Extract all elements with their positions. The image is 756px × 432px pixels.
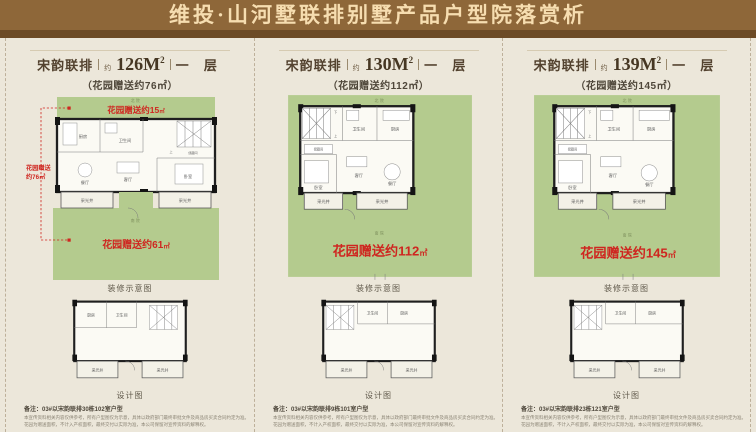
yard-bottom-label: 南院 [131, 218, 142, 223]
room-dining: 餐厅 [644, 181, 653, 188]
brochure-page: { "banner": { "title": "维投·山河墅联排别墅产品户型院落… [0, 0, 756, 432]
room-living: 客厅 [124, 176, 132, 183]
area-sup: 2 [160, 55, 165, 65]
well-right-label: 采光井 [179, 197, 192, 204]
approx-label: 约 [104, 63, 111, 73]
room-dining: 餐厅 [81, 179, 89, 186]
garden-top-text: 花园赠送约15 [107, 105, 159, 115]
divider-bar [666, 59, 667, 70]
yard-top-label: 北院 [374, 98, 385, 103]
well-right-label: 采光井 [653, 367, 665, 372]
room-kitchen: 厨房 [390, 125, 398, 132]
garden-subtitle: （花园赠送约112㎡） [328, 77, 430, 92]
room-bath: 卫生间 [119, 137, 132, 144]
sofa-icon [346, 157, 366, 167]
approx-label: 约 [601, 63, 608, 73]
caption-design: 设计图 [613, 390, 640, 401]
well-right-label: 采光井 [632, 198, 645, 205]
red-marker-top [68, 107, 71, 110]
series-name: 宋韵联排 [534, 55, 590, 74]
well-right-label: 采光井 [375, 198, 388, 205]
floor-plan-design: 卫生间 厨房 采光井 采光井 [300, 296, 458, 389]
stairs-icon [326, 305, 354, 329]
stairs-icon [302, 108, 330, 138]
floor-plan-design: 厨房 卫生间 采光井 采光井 [51, 296, 209, 389]
unit-header: 宋韵联排 约 126M2 一 层 [30, 50, 230, 74]
divider-bar [98, 59, 99, 70]
unit-header: 宋韵联排 约 130M2 一 层 [279, 50, 479, 74]
garden-top-label: 花园赠送约15㎡ [107, 105, 165, 115]
stairs-icon [556, 108, 584, 138]
garden-main-unit: ㎡ [667, 250, 676, 260]
page-title: 维投·山河墅联排别墅产品户型院落赏析 [169, 5, 587, 26]
room-kitchen: 厨房 [87, 312, 95, 317]
well-left-label: 采光井 [317, 198, 330, 205]
room-living: 客厅 [354, 172, 363, 179]
room-bedroom: 卧室 [184, 173, 192, 180]
bathtub-icon [105, 123, 117, 133]
series-name: 宋韵联排 [286, 55, 342, 74]
disclaimer-line-2: 花园为赠送面积，不计入产权面积，最终交付以实际为准，本公司保留对宣传资料的解释权… [24, 422, 249, 428]
area-sup: 2 [409, 55, 414, 65]
unit-area: 139M2 [613, 55, 662, 73]
room-closet: 储藏间 [188, 150, 197, 155]
garden-subtitle: （花园赠送约76㎡） [82, 77, 178, 92]
yard-bottom-label: 南院 [374, 230, 385, 235]
bathtub-icon [346, 110, 358, 120]
disclaimer-line-2: 花园为赠送面积，不计入产权面积，最终交付以实际为准，本公司保留对宣传资料的解释权… [273, 422, 498, 428]
area-value: 126M [116, 54, 160, 74]
door-arc [374, 361, 383, 370]
floor-label: 一 层 [424, 55, 471, 74]
kitchen-counter-icon [383, 110, 409, 120]
floor-plan-main: 北院 花园赠送约15㎡ 南院 花园赠送约61㎡ [25, 92, 235, 282]
area-value: 130M [365, 54, 409, 74]
room-kitchen: 厨房 [400, 311, 408, 316]
room-bath: 卫生间 [352, 125, 365, 132]
area-value: 139M [613, 54, 657, 74]
garden-tongue [119, 192, 153, 208]
room-bath: 卫生间 [614, 311, 626, 316]
garden-side-line2: 约76㎡ [26, 173, 46, 181]
title-banner: 维投·山河墅联排别墅产品户型院落赏析 [0, 0, 756, 30]
well-left-label: 采光井 [571, 198, 584, 205]
yard-top-label: 北院 [131, 98, 142, 103]
footnote-block: 备注：03#以宋韵联排9栋101室户型 本宣传资料相关内容仅供参考，所有户型图仅… [263, 407, 498, 427]
floor-label: 一 层 [672, 55, 719, 74]
disclaimer-line-1: 本宣传资料相关内容仅供参考，所有户型图仅为示意，具体以政府部门最终审批文件及商品… [273, 415, 498, 421]
bathtub-icon [600, 110, 612, 120]
stairs-up-label: 上 [169, 149, 172, 154]
kitchen-counter-icon [63, 123, 77, 145]
sofa-icon [117, 162, 139, 173]
floor-plan-main: 北院 [278, 92, 480, 282]
disclaimer-line-1: 本宣传资料相关内容仅供参考，所有户型图仅为示意，具体以政府部门最终审批文件及商品… [521, 415, 746, 421]
stairs-icon [177, 121, 211, 147]
room-kitchen: 厨房 [647, 125, 655, 132]
disclaimer-line-1: 本宣传资料相关内容仅供参考，所有户型图仅为示意，具体以政府部门最终审批文件及商品… [24, 415, 249, 421]
divider-bar [418, 59, 419, 70]
unit-area: 126M2 [116, 55, 165, 73]
room-living: 客厅 [608, 172, 617, 179]
room-bath: 卫生间 [366, 311, 378, 316]
unit-panel-130: 宋韵联排 约 130M2 一 层 （花园赠送约112㎡） 北院 [254, 38, 502, 432]
room-bath: 卫生间 [116, 312, 128, 317]
unit-header: 宋韵联排 约 139M2 一 层 [527, 50, 727, 74]
kitchen-counter-icon [639, 110, 669, 120]
door-arc [622, 361, 631, 370]
well-left-label: 采光井 [588, 367, 600, 372]
divider-bar [595, 59, 596, 70]
room-closet: 储藏间 [313, 147, 322, 152]
remark-line: 备注：03#以宋韵联排23栋121室户型 [521, 407, 746, 414]
caption-decorated: 装修示意图 [108, 283, 153, 294]
divider-bar [170, 59, 171, 70]
stairs-icon [150, 305, 178, 329]
room-dining: 餐厅 [387, 180, 396, 187]
caption-decorated: 装修示意图 [356, 283, 401, 294]
floor-plan-design: 卫生间 厨房 采光井 采光井 [548, 296, 706, 389]
room-bedroom: 卧室 [314, 184, 322, 191]
door-arc [125, 361, 134, 370]
room-kitchen: 厨房 [79, 133, 87, 140]
yard-top-label: 北院 [622, 98, 633, 103]
stairs-down-label: 下 [588, 110, 591, 114]
well-left-label: 采光井 [340, 367, 352, 372]
unit-panel-139: 宋韵联排 约 139M2 一 层 （花园赠送约145㎡） 北院 [502, 38, 750, 432]
panels-row: 宋韵联排 约 126M2 一 层 （花园赠送约76㎡） 北院 花园赠送约15㎡ … [5, 38, 751, 432]
garden-bottom-unit: ㎡ [163, 241, 170, 250]
yard-bottom-label: 南院 [622, 232, 633, 237]
caption-decorated: 装修示意图 [604, 283, 649, 294]
footnote-block: 备注：03#以宋韵联排30栋102室户型 本宣传资料相关内容仅供参考，所有户型图… [14, 407, 249, 427]
red-marker-bottom [68, 239, 71, 242]
unit-panel-126: 宋韵联排 约 126M2 一 层 （花园赠送约76㎡） 北院 花园赠送约15㎡ … [6, 38, 254, 432]
banner-accent-strip [0, 30, 756, 38]
bed-icon [304, 161, 328, 183]
well-left-label: 采光井 [81, 197, 94, 204]
unit-area: 130M2 [365, 55, 414, 73]
dining-table-icon [641, 165, 657, 181]
dining-table-icon [384, 164, 400, 180]
garden-main-unit: ㎡ [419, 248, 428, 258]
garden-bottom-label: 花园赠送约61㎡ [102, 238, 170, 251]
stairs-up-label: 上 [334, 134, 337, 139]
stairs-icon [574, 305, 602, 329]
room-bedroom: 卧室 [568, 184, 576, 191]
bed-icon [558, 161, 582, 183]
dining-table-icon [78, 163, 92, 177]
caption-design: 设计图 [365, 390, 392, 401]
garden-main-label: 花园赠送约112㎡ [332, 243, 428, 259]
well-left-label: 采光井 [92, 367, 104, 372]
divider-bar [347, 59, 348, 70]
garden-subtitle: （花园赠送约145㎡） [575, 77, 677, 92]
well-right-label: 采光井 [157, 367, 169, 372]
stairs-down-label: 下 [334, 110, 337, 114]
room-kitchen: 厨房 [648, 311, 656, 316]
garden-main-text: 花园赠送约112 [332, 243, 419, 259]
garden-top-unit: ㎡ [159, 107, 165, 115]
floor-plan-main: 北院 [526, 92, 728, 282]
footnote-block: 备注：03#以宋韵联排23栋121室户型 本宣传资料相关内容仅供参考，所有户型图… [511, 407, 746, 427]
disclaimer-line-2: 花园为赠送面积，不计入产权面积，最终交付以实际为准，本公司保留对宣传资料的解释权… [521, 422, 746, 428]
floor-label: 一 层 [176, 55, 223, 74]
well-right-label: 采光井 [405, 367, 417, 372]
room-closet: 储藏间 [567, 147, 576, 152]
garden-main-label: 花园赠送约145㎡ [580, 245, 677, 261]
caption-design: 设计图 [117, 390, 144, 401]
garden-bottom-text: 花园赠送约61 [102, 238, 164, 251]
approx-label: 约 [353, 63, 360, 73]
remark-line: 备注：03#以宋韵联排30栋102室户型 [24, 407, 249, 414]
garden-side-line1: 花园赠送 [26, 164, 52, 172]
series-name: 宋韵联排 [37, 55, 93, 74]
stairs-up-label: 上 [588, 134, 591, 139]
area-sup: 2 [657, 55, 662, 65]
garden-main-text: 花园赠送约145 [580, 245, 668, 261]
room-bath: 卫生间 [607, 125, 620, 132]
remark-line: 备注：03#以宋韵联排9栋101室户型 [273, 407, 498, 414]
sofa-icon [600, 157, 620, 167]
